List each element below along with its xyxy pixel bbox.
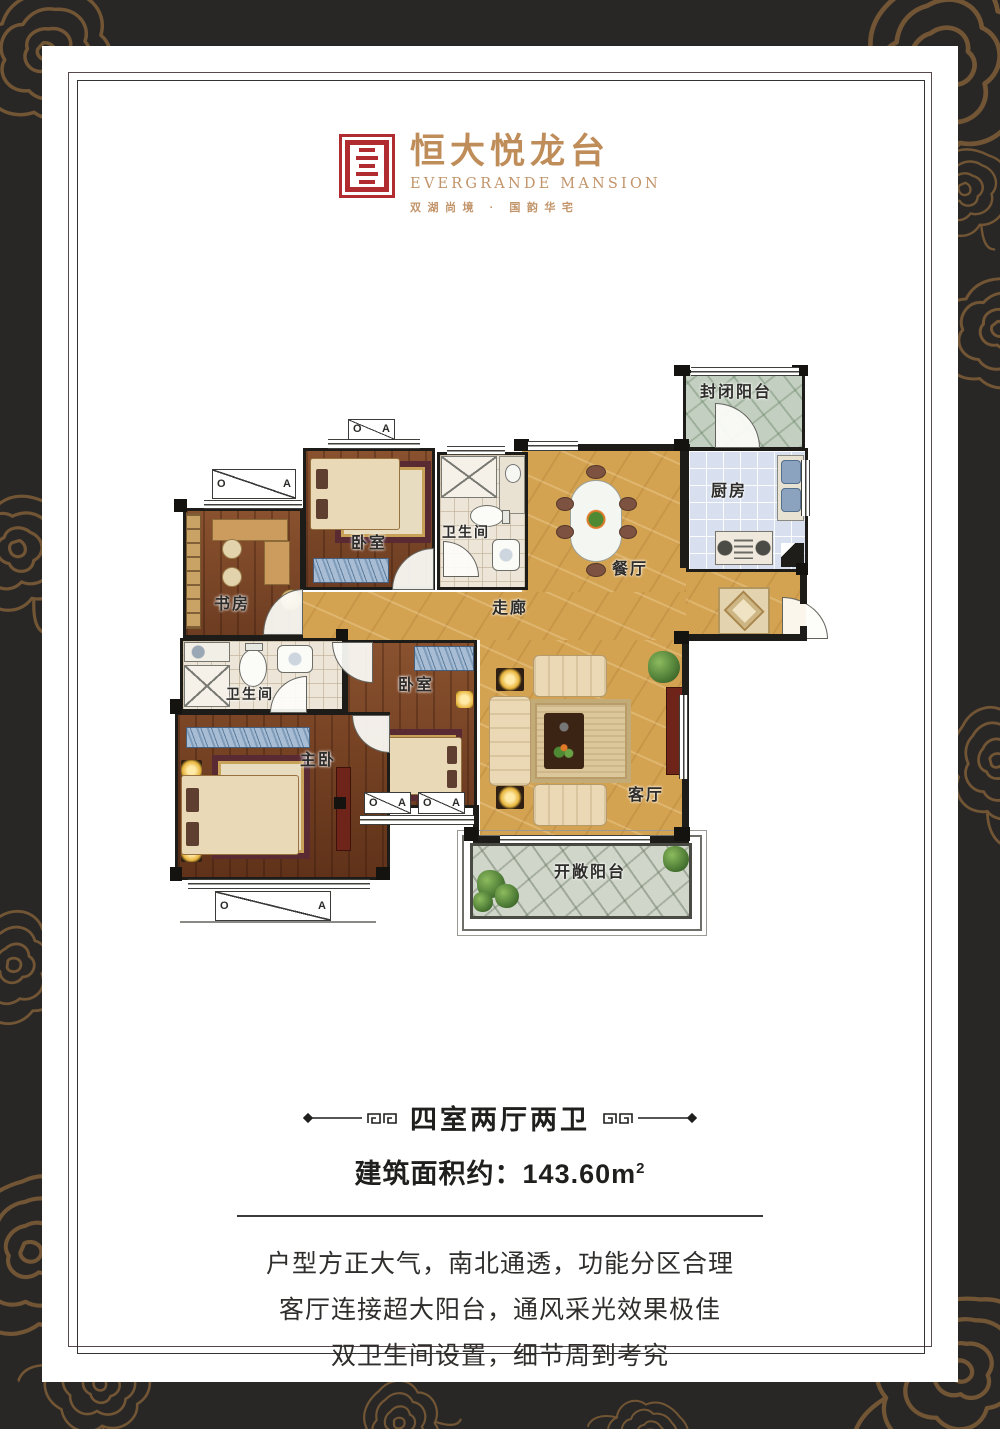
wall-chunk [170,867,182,881]
room-label-master: 主卧 [300,753,336,769]
bookshelf [186,513,201,629]
logo-tagline: 双湖尚境 · 国韵华宅 [410,199,661,215]
layout-title: 四室两厅两卫 [410,1098,590,1137]
window-mark-a: A [452,798,460,809]
dining-chair [619,525,637,539]
divider-line [237,1215,763,1217]
window-mark-a: A [382,424,390,435]
description-line: 双卫生间设置，细节周到考究 [42,1333,958,1379]
bed [181,775,299,855]
room-label-open-balcony: 开敞阳台 [554,865,626,881]
side-table-lamp [496,668,524,691]
room-label-corridor: 走廊 [492,601,528,617]
window-mark-box: OA [418,792,465,814]
window-outer-line [180,921,376,923]
area-line: 建筑面积约：143.60m2 [42,1152,958,1191]
plant [663,846,689,872]
dining-table [570,480,622,562]
room-label-study: 书房 [214,597,250,613]
room-label-enclosed-balcony: 封闭阳台 [700,385,772,401]
logo-subtitle: EVERGRANDE MANSION [410,176,661,192]
wall-chunk [674,827,690,841]
logo: 恒大悦龙台 EVERGRANDE MANSION 双湖尚境 · 国韵华宅 [42,134,958,215]
dining-chair [586,465,606,479]
flourish-left-icon [300,1110,400,1126]
wall-chunk [674,439,689,451]
window-mark-box: OA [215,891,331,921]
layout-title-row: 四室两厅两卫 [42,1098,958,1137]
plant [648,651,680,683]
window-glazing [801,460,810,516]
wall [800,570,807,604]
wardrobe [186,727,310,748]
window-mark-box: OA [364,792,411,814]
window-glazing [204,500,302,509]
open-balcony-room [470,843,692,919]
nightstand-lamp [456,691,473,708]
toilet [239,649,267,687]
window-glazing [328,439,420,449]
window-mark-a: A [398,798,406,809]
wall [686,634,807,641]
dining-chair [619,497,637,511]
wall [680,450,686,568]
coffee-table [544,713,584,769]
room-label-living: 客厅 [628,788,664,804]
info-section: 四室两厅两卫 建筑面积约：143.60m2 户型方正大气，南北通透，功能分区合理… [42,1098,958,1379]
wall-chunk [674,631,689,644]
plant [495,884,519,908]
wall-chunk [514,439,529,451]
wall-chunk [464,827,478,841]
room-label-bedroom-top: 卧室 [351,536,387,552]
bath-sink [277,645,313,673]
description-line: 户型方正大气，南北通透，功能分区合理 [42,1241,958,1287]
window-mark-a: A [318,901,326,912]
window-glazing [528,441,578,451]
balcony-slider-glazing [500,835,650,844]
window-glazing [447,446,505,455]
window-mark-a: A [283,479,291,490]
desk-return [264,541,290,585]
entry-floor-medallion [718,587,770,635]
bath-sink [492,539,520,571]
logo-seal-icon [339,134,395,198]
wardrobe [414,646,474,671]
wall-chunk [170,699,182,714]
bed [310,458,400,530]
room-label-bath-master: 卫生间 [226,687,274,701]
room-label-bath-top: 卫生间 [442,525,490,539]
side-table-lamp [496,786,524,809]
dining-chair [556,497,574,511]
window-mark-o: O [220,901,229,912]
wardrobe [313,558,389,583]
sofa-loveseat [533,784,607,826]
vanity [499,456,525,514]
chair [222,567,242,587]
window-mark-o: O [423,798,432,809]
desk [212,519,288,541]
shower [184,665,230,707]
sink-basin-icon [781,460,801,484]
window-mark-o: O [353,424,362,435]
logo-text: 恒大悦龙台 EVERGRANDE MANSION 双湖尚境 · 国韵华宅 [410,134,661,215]
area-sup: 2 [636,1160,645,1177]
bed [382,737,462,795]
kitchen-room [686,448,808,572]
sofa-loveseat [533,655,607,697]
master-bedroom-room [175,712,390,880]
shower [441,456,497,498]
washer [184,642,230,662]
plant [473,892,493,912]
window-glazing [188,879,370,889]
flourish-right-icon [600,1110,700,1126]
kitchen-sink-counter [777,455,804,521]
floor-plan: OA OA OA OA OA 封闭阳台 厨房 餐厅 走廊 书房 卧室 卫生间 卫… [170,365,842,965]
window-glazing [691,367,799,376]
window-mark-o: O [217,479,226,490]
area-label: 建筑面积约： [355,1159,523,1189]
room-label-dining: 餐厅 [612,562,648,578]
wall-chunk [796,563,808,575]
window-mark-o: O [369,798,378,809]
logo-title: 恒大悦龙台 [410,134,661,171]
sofa-three-seat [489,696,531,786]
sink-basin-icon [781,488,801,512]
room-label-kitchen: 厨房 [711,484,747,500]
wall-chunk [174,499,187,512]
area-value: 143.60m [523,1159,637,1189]
wall-chunk [334,797,346,809]
dresser [336,767,351,851]
window-mark-box: OA [212,469,296,499]
dining-chair [556,525,574,539]
wall-chunk [674,365,690,376]
wall-chunk [376,867,390,880]
dining-chair [586,563,606,577]
description-line: 客厅连接超大阳台，通风采光效果极佳 [42,1287,958,1333]
window-glazing [360,815,474,825]
room-label-bedroom-mid: 卧室 [398,678,434,694]
chair [222,539,242,559]
stove [715,531,773,565]
description: 户型方正大气，南北通透，功能分区合理 客厅连接超大阳台，通风采光效果极佳 双卫生… [42,1241,958,1379]
wall-chunk [336,629,348,641]
window-mark-box: OA [348,419,395,440]
window-glazing [679,695,688,779]
brochure-page: 恒大悦龙台 EVERGRANDE MANSION 双湖尚境 · 国韵华宅 [42,46,958,1382]
